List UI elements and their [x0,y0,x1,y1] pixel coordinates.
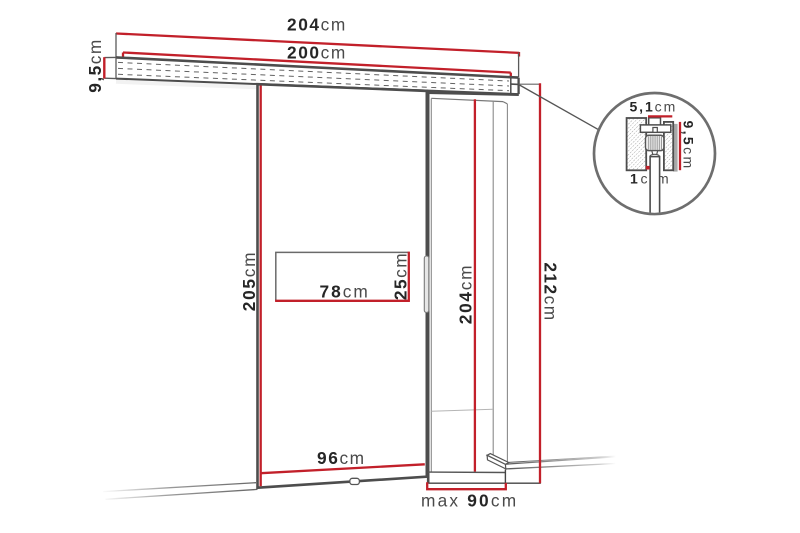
svg-text:200cm: 200cm [287,43,347,63]
svg-text:5,1cm: 5,1cm [630,99,678,115]
svg-text:9,5cm: 9,5cm [681,120,697,170]
svg-text:204cm: 204cm [456,264,476,324]
svg-text:204cm: 204cm [287,14,347,34]
svg-text:max 90cm: max 90cm [421,491,518,511]
svg-text:25cm: 25cm [390,252,410,300]
svg-text:9,5cm: 9,5cm [85,38,105,93]
svg-text:205cm: 205cm [239,251,259,311]
svg-text:212cm: 212cm [541,262,561,321]
svg-text:78cm: 78cm [320,282,370,302]
svg-text:96cm: 96cm [317,448,366,468]
